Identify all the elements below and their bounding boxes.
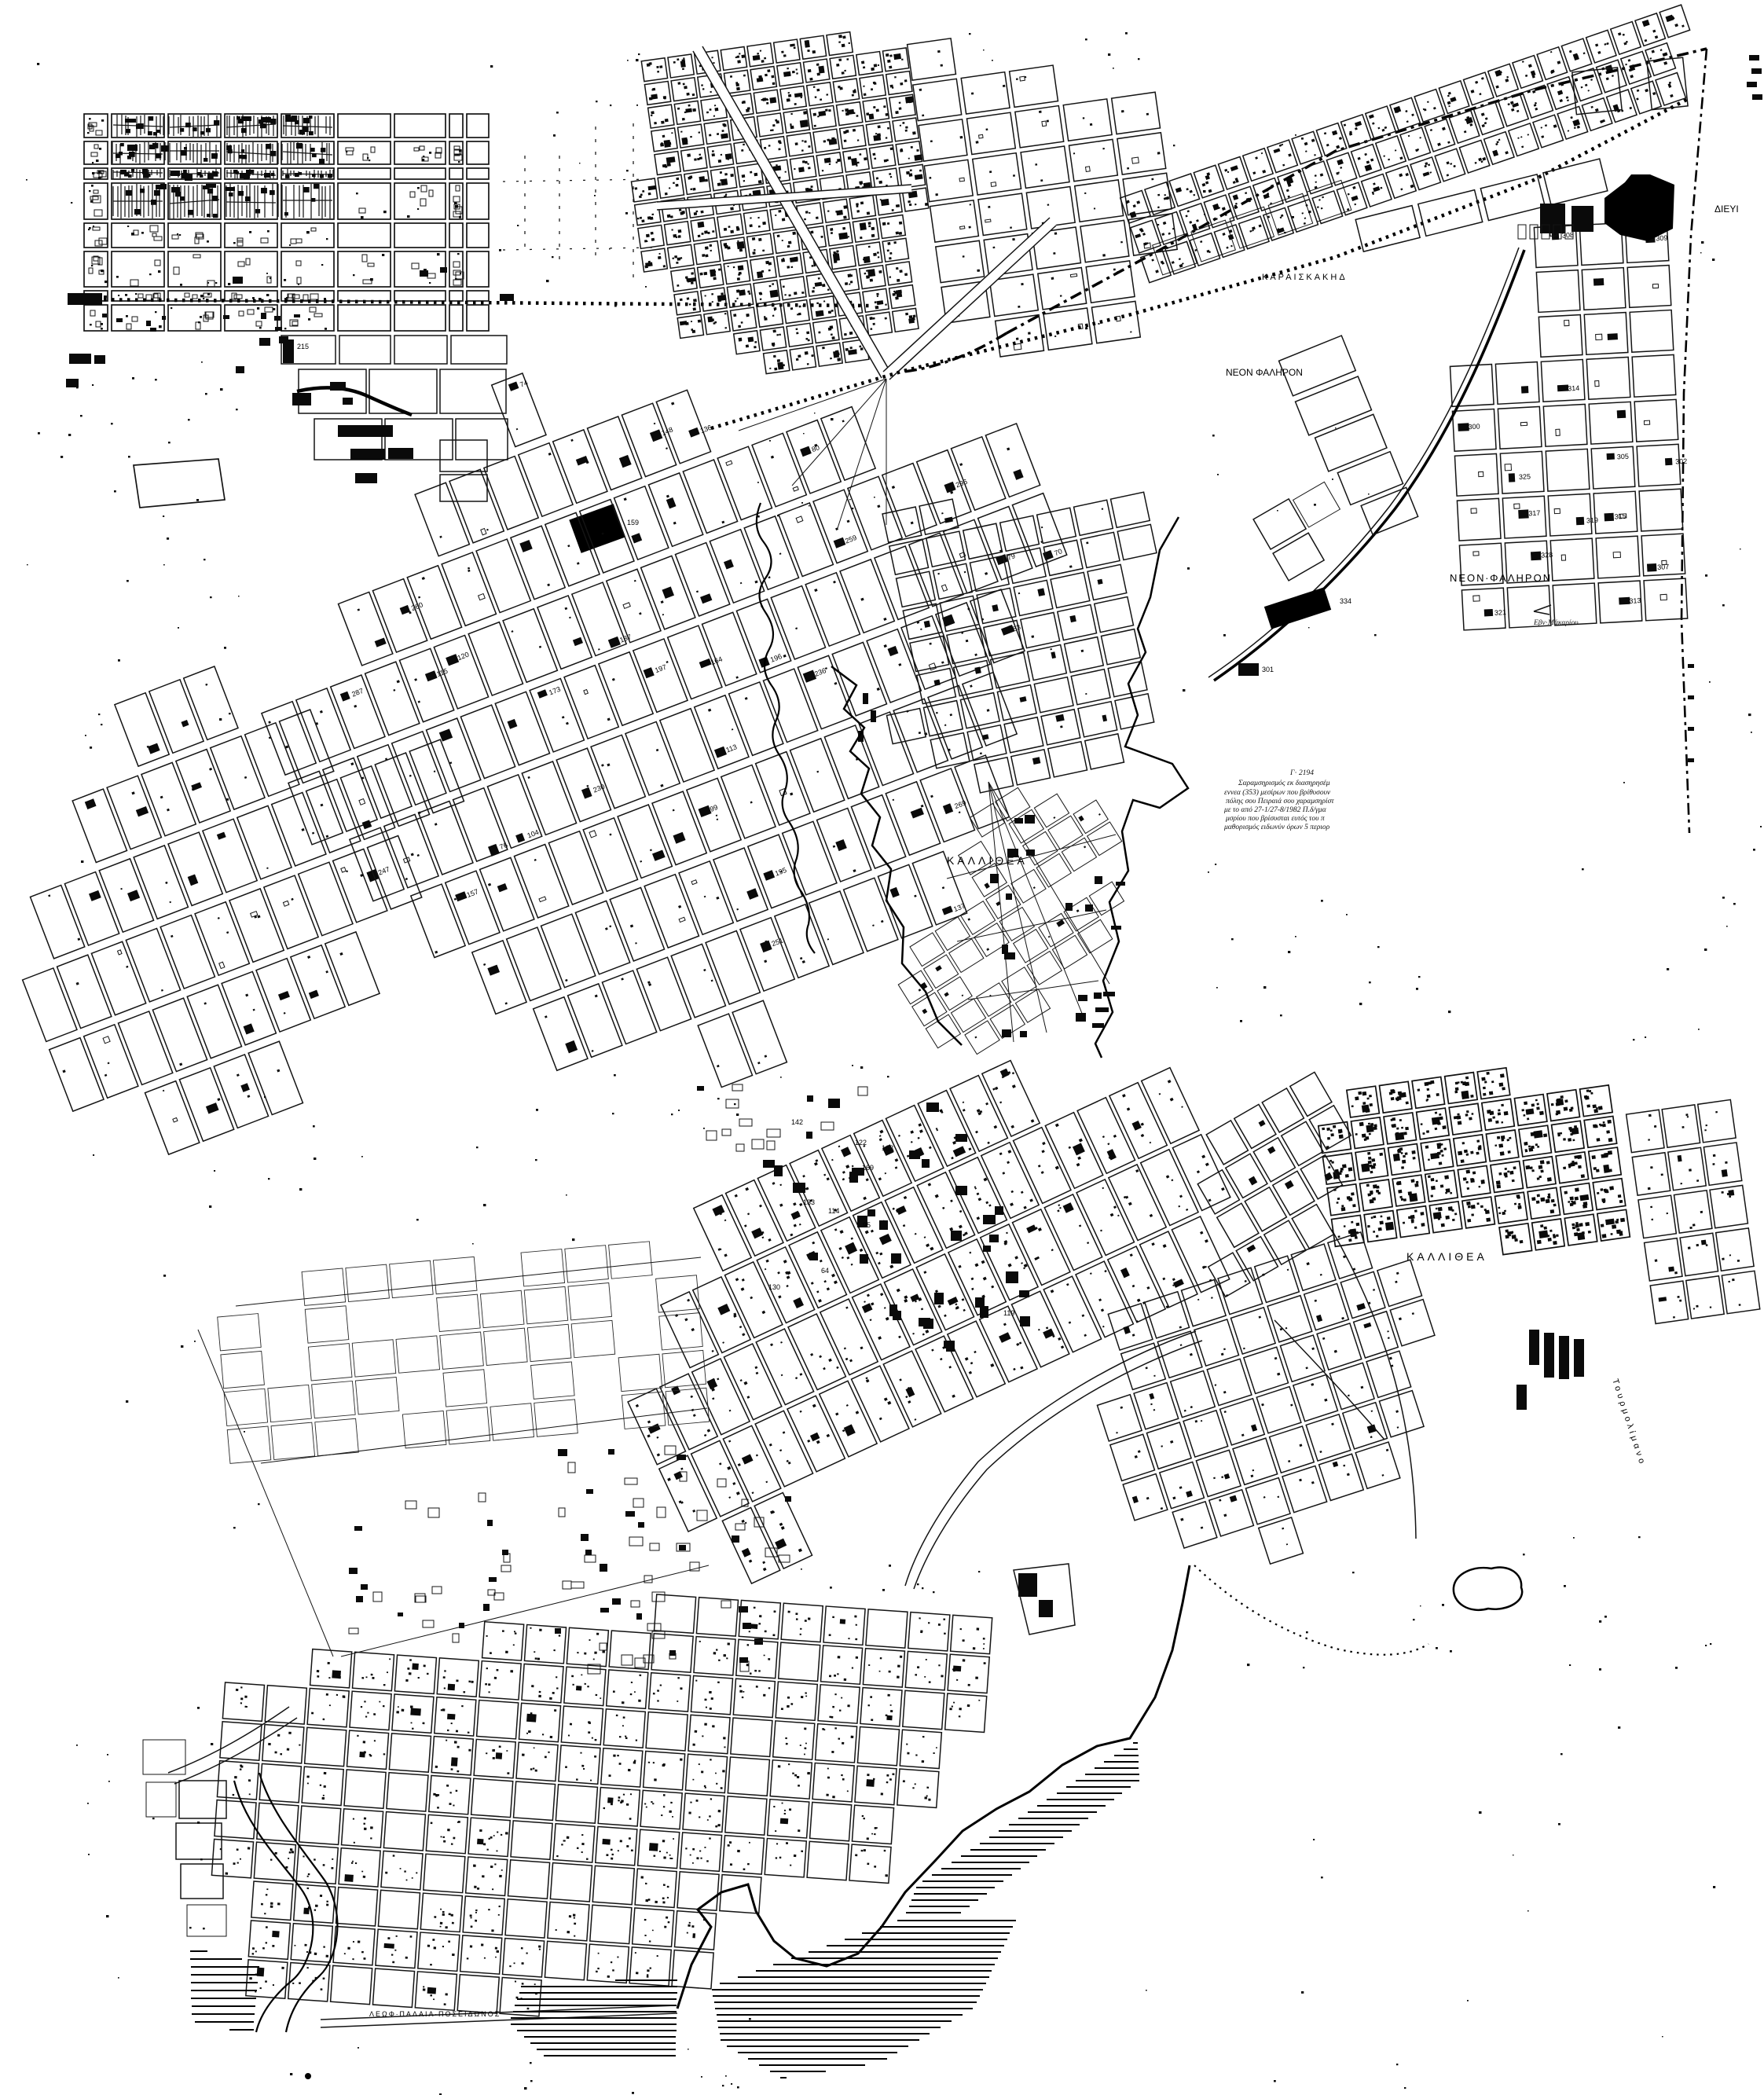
- svg-text:163: 163: [882, 1144, 893, 1152]
- svg-text:ΔΙΕΥΙ: ΔΙΕΥΙ: [1714, 204, 1739, 215]
- svg-text:130: 130: [768, 1283, 780, 1291]
- svg-text:300: 300: [1468, 422, 1480, 431]
- svg-text:πόλης σου Πειραιά σου χαραμσηρ: πόλης σου Πειραιά σου χαραμσηρίστ: [1226, 798, 1334, 805]
- svg-text:301: 301: [1262, 666, 1274, 673]
- svg-text:215: 215: [297, 343, 309, 350]
- svg-text:302: 302: [1675, 457, 1688, 466]
- svg-text:313: 313: [1629, 596, 1641, 605]
- svg-text:325: 325: [1519, 472, 1531, 481]
- svg-text:μσρίου που βρίσυσται ευτός του: μσρίου που βρίσυσται ευτός του π: [1225, 815, 1325, 823]
- svg-text:εννεα (353) μεσίρων που βρίθυσ: εννεα (353) μεσίρων που βρίθυσουν: [1224, 788, 1331, 797]
- svg-text:Σαραμσηρισμός εκ διασηρησέμ: Σαραμσηρισμός εκ διασηρησέμ: [1238, 780, 1330, 787]
- svg-text:169: 169: [862, 1164, 874, 1172]
- svg-text:314: 314: [1568, 384, 1580, 393]
- svg-text:Γ· 2194: Γ· 2194: [1289, 769, 1314, 777]
- svg-text:159: 159: [627, 519, 639, 527]
- svg-text:ΚΑΡΑΙΣΚΑΚΗΔ: ΚΑΡΑΙΣΚΑΚΗΔ: [1262, 273, 1348, 282]
- svg-text:μαθορισμός ειδωνύν όρων 5 περι: μαθορισμός ειδωνύν όρων 5 περιορ: [1223, 824, 1330, 831]
- svg-text:ΝΕΟΝ ΦΑΛΗΡΟΝ: ΝΕΟΝ ΦΑΛΗΡΟΝ: [1226, 367, 1303, 378]
- svg-text:ΛΕΩΦ·ΠΑΛΑΙΑ·ΠΟΣΕΙΔΩΝΟΣ: ΛΕΩΦ·ΠΑΛΑΙΑ·ΠΟΣΕΙΔΩΝΟΣ: [369, 2010, 501, 2018]
- svg-text:ΚΑΛΛΙΘΕΑ: ΚΑΛΛΙΘΕΑ: [947, 854, 1028, 867]
- svg-text:95: 95: [863, 1221, 871, 1229]
- svg-text:ΚΑΛΛΙΘΕΑ: ΚΑΛΛΙΘΕΑ: [1406, 1250, 1487, 1263]
- svg-text:142: 142: [791, 1118, 803, 1126]
- svg-text:ΝΕΟΝ·ΦΑΛΗΡΟΝ: ΝΕΟΝ·ΦΑΛΗΡΟΝ: [1450, 572, 1552, 584]
- svg-text:64: 64: [821, 1267, 829, 1275]
- svg-text:307: 307: [1657, 563, 1670, 571]
- svg-text:319: 319: [1586, 516, 1599, 525]
- svg-text:334: 334: [1340, 597, 1351, 605]
- svg-text:305: 305: [1617, 453, 1630, 461]
- svg-text:Εβν·Μάκαρίου: Εβν·Μάκαρίου: [1533, 619, 1579, 627]
- svg-text:114: 114: [828, 1207, 839, 1215]
- svg-text:122: 122: [855, 1139, 867, 1147]
- svg-text:119: 119: [1003, 1309, 1014, 1317]
- svg-text:με το από 27-1/27-8/1982 Π.δ/γ: με το από 27-1/27-8/1982 Π.δ/γμα: [1223, 806, 1327, 814]
- svg-text:133: 133: [803, 1198, 815, 1206]
- svg-text:321: 321: [1494, 608, 1507, 617]
- svg-text:317: 317: [1528, 509, 1541, 518]
